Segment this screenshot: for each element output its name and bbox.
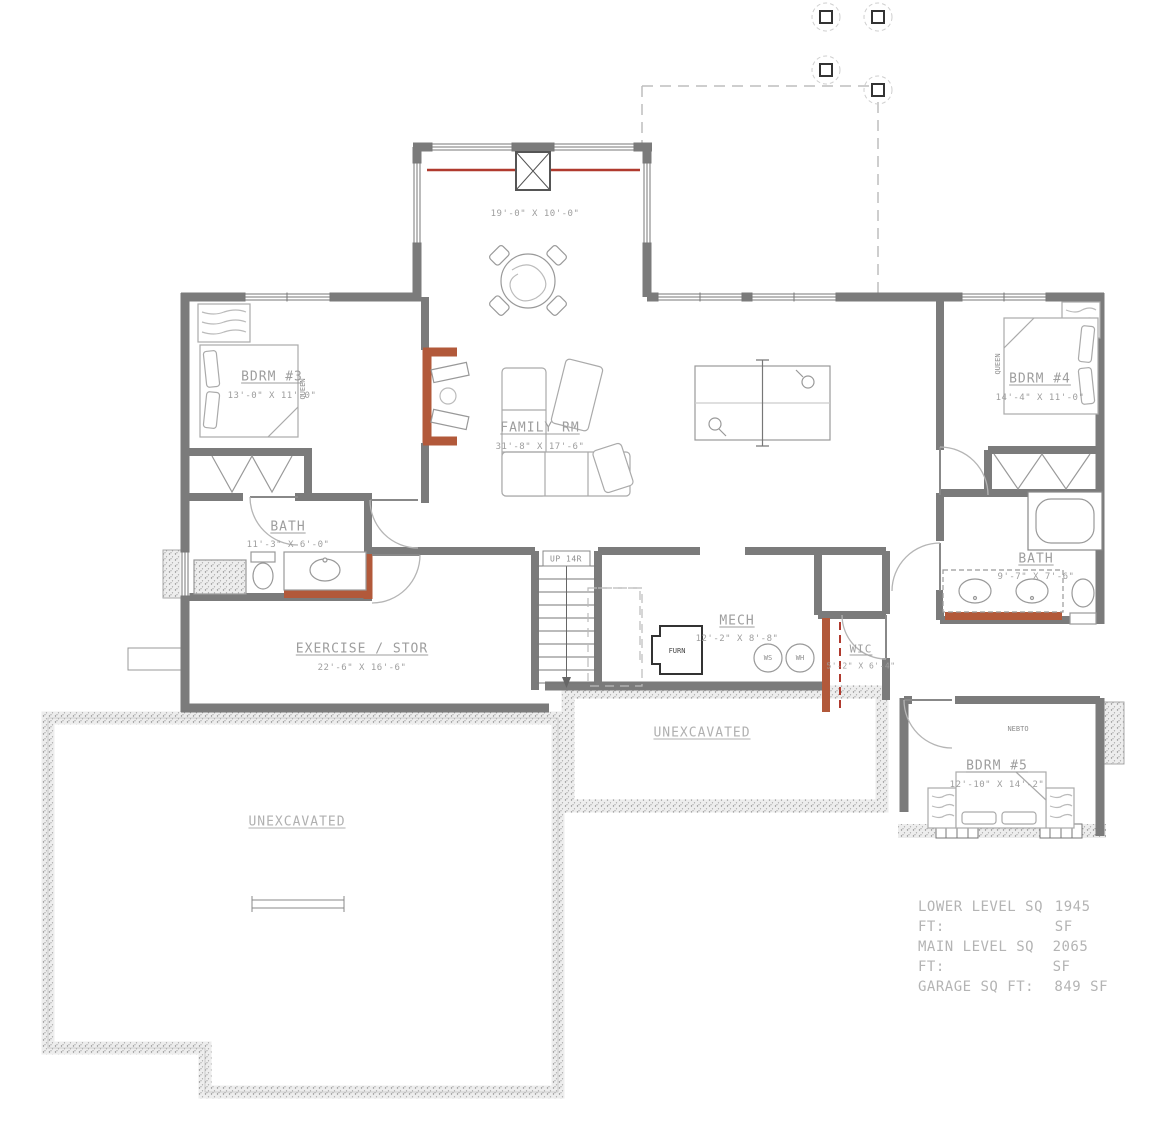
room-dims-wic: 5'-2" X 6'-4": [826, 662, 895, 671]
room-label-bdrm4: BDRM #4: [1009, 372, 1071, 387]
area-row-lower-level: LOWER LEVEL SQ FT: 1945 SF: [918, 897, 1108, 937]
area-label: GARAGE SQ FT:: [918, 977, 1034, 997]
queen-right-label: QUEEN: [994, 353, 1002, 374]
media-cabinet: [431, 362, 469, 429]
bath-left-fixtures: [194, 552, 366, 594]
area-value: 2065 SF: [1053, 937, 1108, 977]
room-dims-bath-right: 9'-7" X 7'-6": [998, 572, 1075, 582]
beam-pocket: [252, 896, 344, 912]
water-heater-label: WH: [796, 654, 804, 662]
room-label-bath-right: BATH: [1018, 552, 1053, 567]
room-dims-exercise: 22'-6" X 16'-6": [318, 663, 407, 673]
furnace-label: FURN: [669, 647, 686, 655]
area-value: 849 SF: [1054, 977, 1108, 997]
room-label-bdrm3: BDRM #3: [241, 370, 303, 385]
room-dims-bdrm4: 14'-4" X 11'-0": [996, 393, 1085, 403]
room-dims-bath-left: 11'-3" X 6'-0": [247, 540, 330, 550]
deck-posts: [812, 3, 892, 104]
ping-pong-table: [695, 360, 830, 446]
room-dims-bdrm5: 12'-10" X 14'-2": [950, 780, 1045, 790]
area-row-garage: GARAGE SQ FT: 849 SF: [918, 977, 1108, 997]
area-value: 1945 SF: [1055, 897, 1108, 937]
room-label-bath-left: BATH: [270, 520, 305, 535]
area-row-main-level: MAIN LEVEL SQ FT: 2065 SF: [918, 937, 1108, 977]
room-dims-mech: 12'-2" X 8'-8": [696, 634, 779, 644]
area-summary: LOWER LEVEL SQ FT: 1945 SF MAIN LEVEL SQ…: [918, 897, 1108, 997]
floor-plan-page: 19'-0" X 10'-0" FAMILY RM 31'-8" X 17'-6…: [0, 0, 1174, 1134]
window-tag-label: NEBTO: [1007, 725, 1028, 733]
stair-rail-dashed: [598, 588, 640, 660]
dining-set: [488, 244, 567, 316]
unexcavated-center-label: UNEXCAVATED: [653, 726, 750, 741]
area-label: MAIN LEVEL SQ FT:: [918, 937, 1053, 977]
room-label-exercise: EXERCISE / STOR: [296, 642, 428, 657]
room-label-wic: WIC: [850, 643, 873, 656]
deck-above-outline: [642, 86, 878, 293]
room-label-mech: MECH: [719, 614, 754, 629]
unexcavated-walls: [48, 692, 1106, 1092]
unexcavated-left-label: UNEXCAVATED: [248, 815, 345, 830]
area-label: LOWER LEVEL SQ FT:: [918, 897, 1055, 937]
fireplace: [516, 152, 550, 190]
deck-dims-label: 19'-0" X 10'-0": [491, 209, 580, 219]
queen-left-label: QUEEN: [299, 378, 307, 399]
room-label-family: FAMILY RM: [500, 421, 579, 436]
room-label-bdrm5: BDRM #5: [966, 759, 1028, 774]
stairs-label: UP 14R: [550, 555, 582, 564]
water-softener-label: WS: [764, 654, 772, 662]
stairs: [537, 551, 596, 688]
room-dims-family: 31'-8" X 17'-6": [496, 442, 585, 452]
